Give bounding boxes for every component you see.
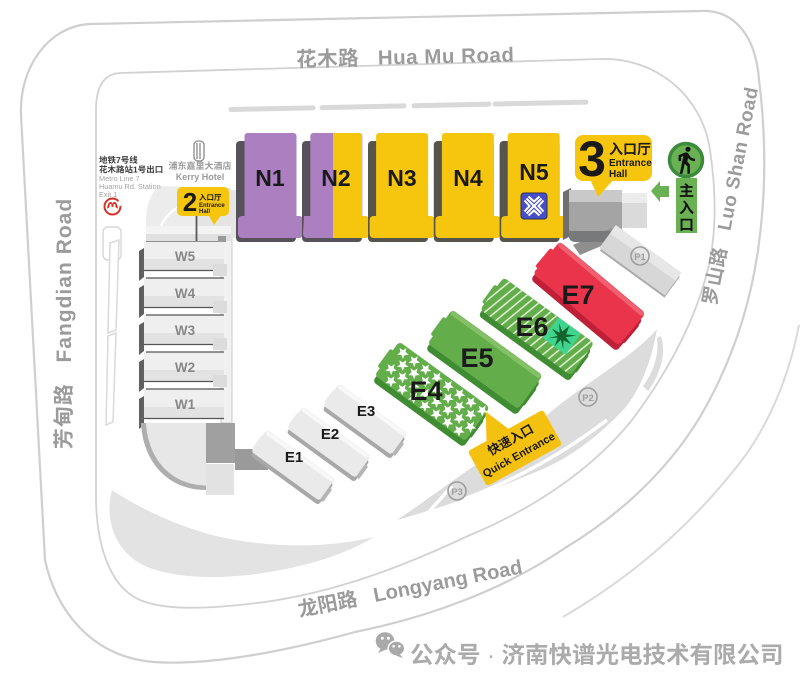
svg-text:N1: N1	[255, 165, 285, 191]
svg-text:N3: N3	[387, 165, 416, 191]
svg-text:N2: N2	[321, 165, 350, 191]
svg-text:Exit 1: Exit 1	[99, 190, 117, 199]
svg-text:Kerry Hotel: Kerry Hotel	[176, 172, 225, 182]
svg-text:E2: E2	[321, 426, 339, 443]
svg-text:E3: E3	[357, 403, 375, 420]
svg-text:Hall: Hall	[199, 209, 210, 215]
svg-text:W4: W4	[175, 286, 196, 301]
svg-text:W2: W2	[175, 360, 195, 375]
svg-text:N4: N4	[453, 165, 483, 191]
svg-text:E1: E1	[285, 449, 303, 466]
svg-text:W1: W1	[175, 397, 196, 412]
svg-text:E6: E6	[515, 312, 548, 342]
svg-text:N5: N5	[519, 159, 549, 185]
svg-text:E7: E7	[561, 280, 594, 310]
svg-text:Entrance: Entrance	[609, 158, 652, 169]
svg-text:P3: P3	[451, 487, 463, 498]
svg-text:2: 2	[183, 187, 197, 217]
svg-text:W3: W3	[175, 323, 196, 338]
svg-text:P1: P1	[634, 252, 646, 263]
svg-text:P2: P2	[582, 393, 594, 404]
svg-text:Hall: Hall	[609, 169, 628, 180]
svg-text:3: 3	[578, 131, 606, 187]
svg-text:W5: W5	[175, 249, 196, 264]
svg-text:E5: E5	[460, 343, 493, 373]
svg-text:E4: E4	[409, 376, 442, 406]
